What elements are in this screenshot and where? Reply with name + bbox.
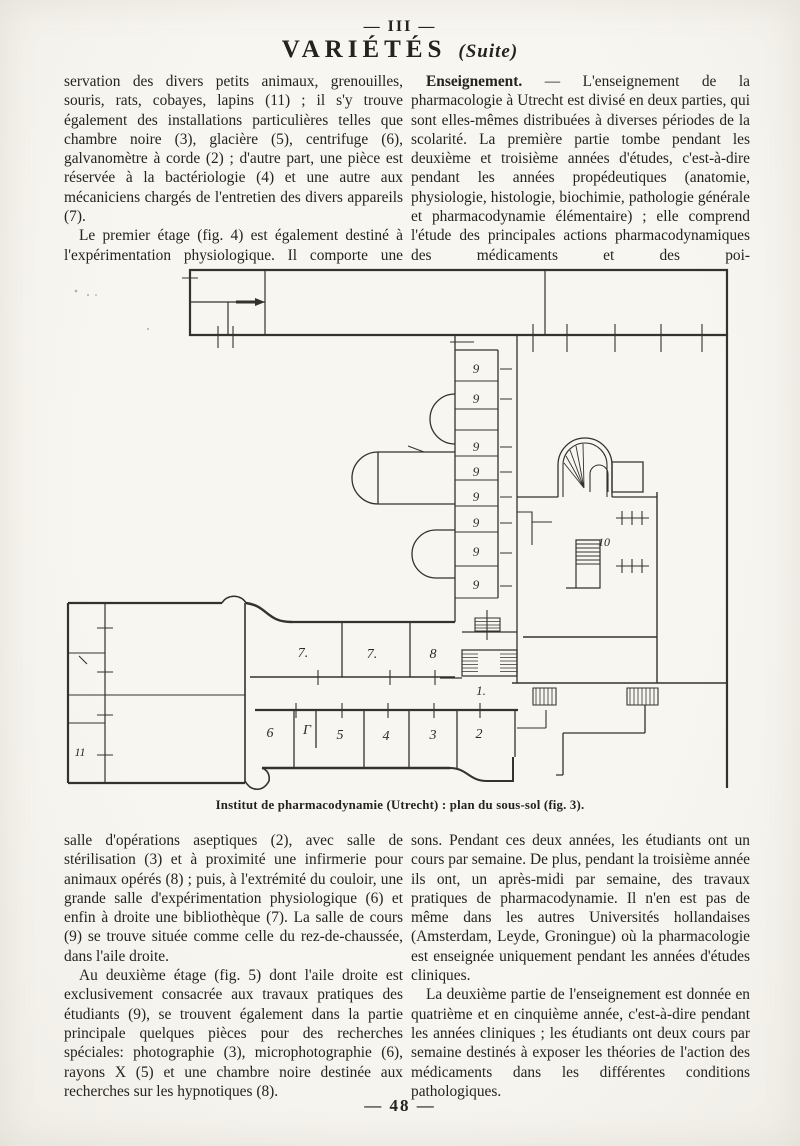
room-label: 10 bbox=[598, 535, 610, 549]
paragraph-body: — L'enseignement de la pharmacologie à U… bbox=[411, 73, 750, 264]
room-label: 9 bbox=[473, 515, 480, 530]
bottom-text-columns: salle d'opérations aseptiques (2), avec … bbox=[64, 831, 750, 1101]
room-label: 6 bbox=[267, 726, 274, 741]
room-label: Γ bbox=[302, 723, 312, 738]
top-text-columns: servation des divers petits animaux, gre… bbox=[64, 72, 750, 265]
room-label: 9 bbox=[473, 439, 480, 454]
journal-page: — III — VARIÉTÉS(Suite) servation des di… bbox=[0, 0, 800, 1146]
page-title: VARIÉTÉS bbox=[282, 36, 447, 63]
left-column-top: servation des divers petits animaux, gre… bbox=[64, 72, 403, 265]
room-label: 9 bbox=[473, 391, 480, 406]
plan-central-stair bbox=[440, 610, 517, 678]
room-label: 7. bbox=[298, 646, 309, 661]
paragraph: sons. Pendant ces deux années, les étudi… bbox=[411, 831, 750, 985]
page-subtitle: (Suite) bbox=[458, 41, 518, 62]
floor-plan-figure: 9 9 9 9 9 9 9 9 10 7. 7. 8 1. 6 Γ 5 4 3 … bbox=[0, 265, 800, 825]
floor-plan-drawing: 9 9 9 9 9 9 9 9 10 7. 7. 8 1. 6 Γ 5 4 3 … bbox=[0, 265, 800, 800]
page-number-top: — III — bbox=[0, 18, 800, 36]
title-row: VARIÉTÉS(Suite) bbox=[0, 36, 800, 64]
right-column-top: Enseignement. — L'enseignement de la pha… bbox=[411, 72, 750, 265]
room-label: 9 bbox=[473, 361, 480, 376]
paragraph: salle d'opérations aseptiques (2), avec … bbox=[64, 831, 403, 966]
page-number-bottom: — 48 — bbox=[0, 1096, 800, 1116]
room-label: 7. bbox=[367, 647, 378, 662]
plan-bottom-wing bbox=[255, 703, 546, 781]
paragraph: La deuxième partie de l'enseignement est… bbox=[411, 985, 750, 1101]
plan-right-wing bbox=[512, 492, 727, 775]
room-label: 3 bbox=[429, 728, 437, 743]
plan-spiral-stair bbox=[517, 438, 657, 497]
room-label: 2 bbox=[476, 727, 483, 742]
room-label: 9 bbox=[473, 544, 480, 559]
room-label: 9 bbox=[473, 464, 480, 479]
room-label: 11 bbox=[74, 745, 85, 759]
room-labels: 9 9 9 9 9 9 9 9 10 7. 7. 8 1. 6 Γ 5 4 3 … bbox=[74, 361, 610, 759]
paragraph: servation des divers petits animaux, gre… bbox=[64, 72, 403, 226]
left-column-bottom: salle d'opérations aseptiques (2), avec … bbox=[64, 831, 403, 1101]
right-column-bottom: sons. Pendant ces deux années, les étudi… bbox=[411, 831, 750, 1101]
paragraph: Enseignement. — L'enseignement de la pha… bbox=[411, 72, 750, 265]
room-label: 9 bbox=[473, 577, 480, 592]
room-label: 8 bbox=[430, 647, 437, 662]
plan-middle-wing bbox=[68, 596, 455, 685]
paragraph: Le premier étage (fig. 4) est également … bbox=[64, 226, 403, 265]
figure-caption: Institut de pharmacodynamie (Utrecht) : … bbox=[0, 798, 800, 813]
plan-left-wing bbox=[68, 603, 269, 789]
room-label: 5 bbox=[337, 728, 344, 743]
room-label: 9 bbox=[473, 489, 480, 504]
plan-rounded-bays bbox=[352, 394, 455, 578]
paragraph: Au deuxième étage (fig. 5) dont l'aile d… bbox=[64, 966, 403, 1101]
room-label: 1. bbox=[476, 683, 486, 698]
run-in-heading: Enseignement. bbox=[426, 73, 522, 90]
scan-specks bbox=[75, 290, 149, 330]
room-label: 4 bbox=[383, 729, 390, 744]
